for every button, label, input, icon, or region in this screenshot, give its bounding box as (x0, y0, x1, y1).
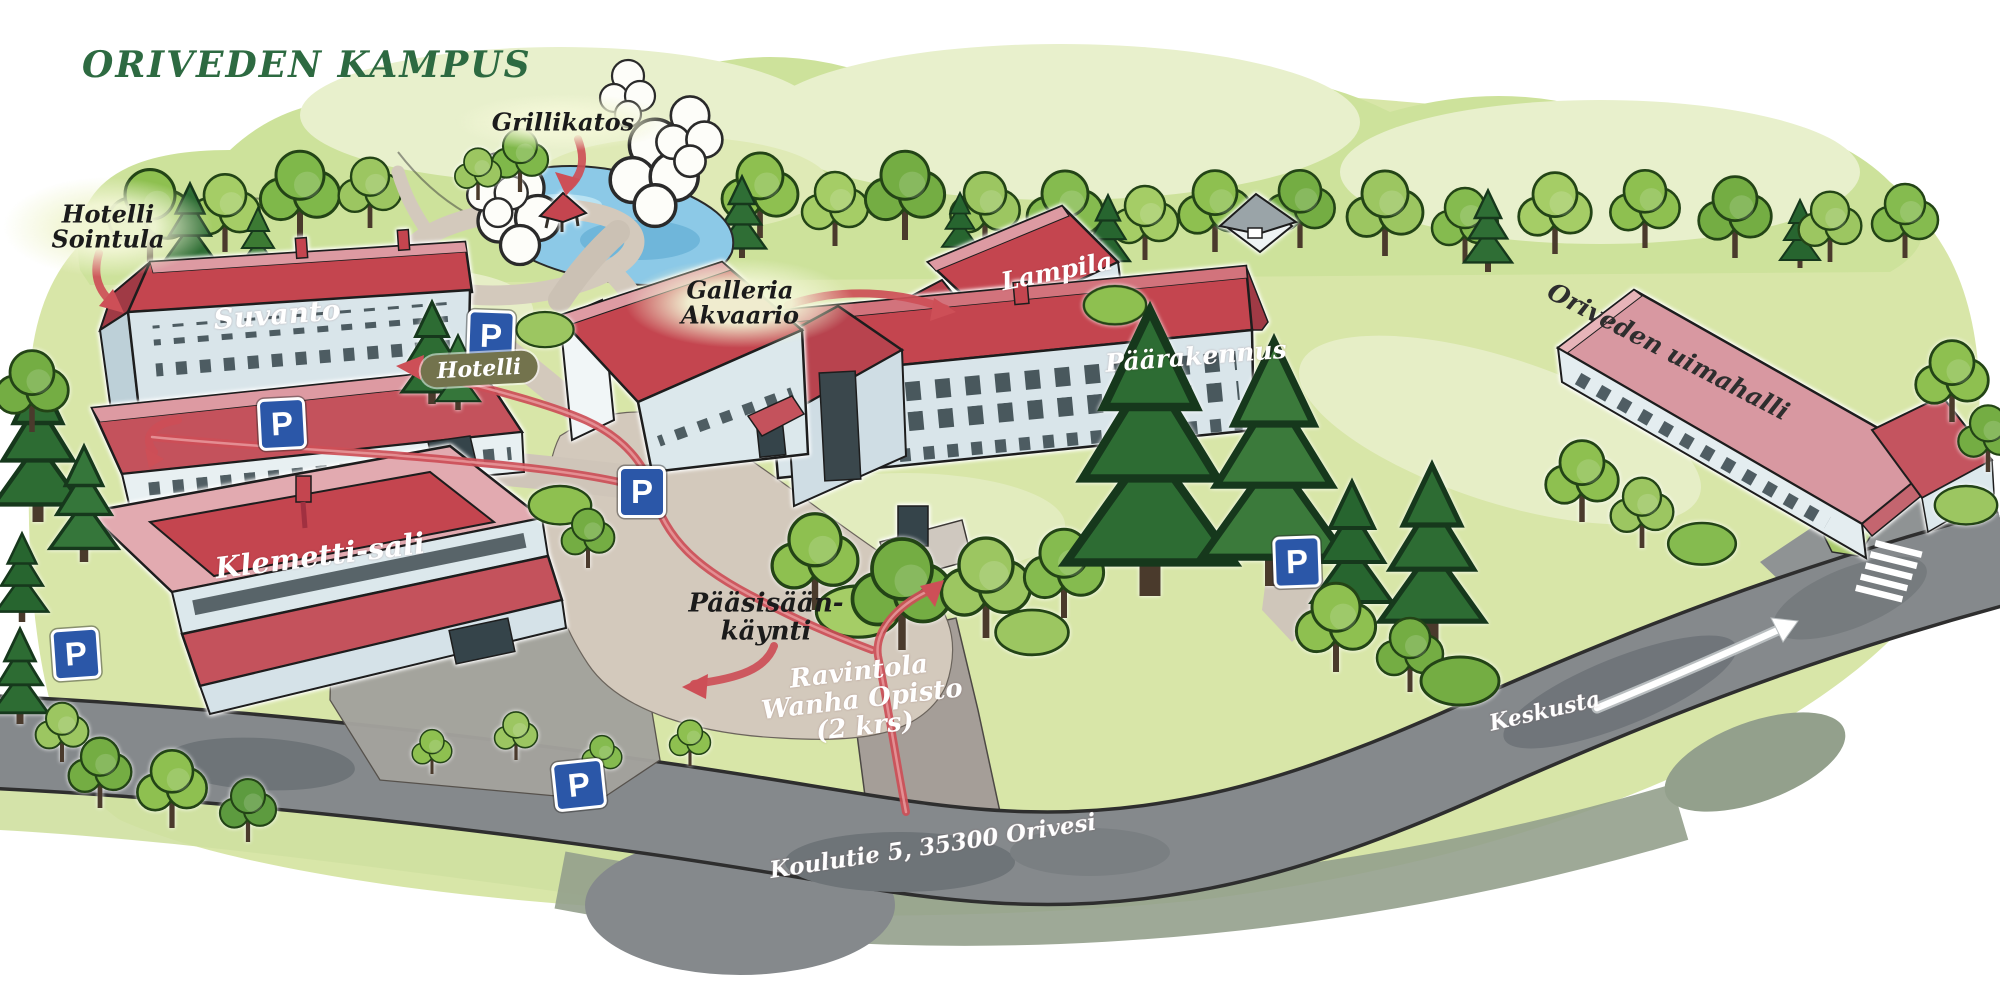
label-paasisaankaynti: Pääsisään- käynti (688, 590, 843, 645)
label-hotelli-badge: Hotelli (420, 350, 538, 388)
parking-sign-icon: P (551, 757, 608, 812)
parking-sign-icon: P (1272, 535, 1322, 589)
label-grillikatos: Grillikatos (492, 109, 634, 134)
map-title: ORIVEDEN KAMPUS (82, 44, 532, 86)
label-hotelli-sointula: Hotelli Sointula (51, 202, 164, 253)
parking-sign-icon: P (257, 397, 308, 451)
parking-sign-icon: P (618, 466, 666, 518)
campus-map: ORIVEDEN KAMPUS Grillikatos Hotelli Soin… (0, 0, 2000, 981)
parking-sign-icon: P (50, 626, 102, 681)
label-galleria-akvaario: Galleria Akvaario (681, 278, 799, 329)
